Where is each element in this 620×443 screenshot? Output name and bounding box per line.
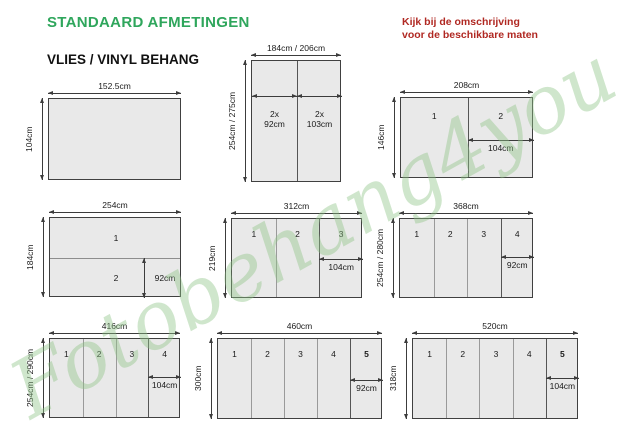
width-dimension-label: 520cm	[412, 321, 578, 331]
panel-number: 3	[479, 349, 512, 359]
figure-368x254-280: 368cm254cm / 280cm123492cm	[375, 201, 535, 300]
height-dimension-label: 184cm	[25, 217, 36, 297]
panel-number: 2	[446, 349, 479, 359]
panel-number: 3	[284, 349, 317, 359]
panel-width-arrow	[350, 380, 383, 381]
panel-number: 5	[350, 349, 383, 359]
height-dimension-label: 104cm	[24, 98, 35, 180]
width-dimension-label: 312cm	[231, 201, 362, 211]
panel-width-label: 104cm	[319, 262, 363, 272]
panel-width-arrow	[468, 140, 535, 141]
width-dimension-label: 416cm	[49, 321, 180, 331]
panel-number: 1	[50, 233, 182, 243]
availability-note-line1: Kijk bij de omschrijving	[402, 16, 538, 29]
panel-height-arrow	[144, 258, 145, 298]
height-dimension-arrow	[406, 338, 407, 419]
height-dimension-label: 254cm / 275cm	[227, 60, 238, 182]
panel-height-label: 92cm	[150, 273, 180, 283]
wallpaper-rect: 1234104cm	[49, 338, 180, 418]
width-dimension-arrow	[251, 55, 341, 56]
wallpaper-rect: 1292cm	[49, 217, 181, 297]
width-dimension-arrow	[400, 92, 533, 93]
wallpaper-rect: 12345104cm	[412, 338, 578, 419]
panel-width-label: 92cm	[501, 260, 535, 270]
height-dimension-arrow	[211, 338, 212, 419]
panel-divider	[50, 258, 180, 259]
height-dimension-arrow	[225, 218, 226, 298]
panel-number: 2	[468, 111, 535, 121]
wallpaper-sizes-infographic: STANDAARD AFMETINGEN VLIES / VINYL BEHAN…	[0, 0, 620, 443]
width-dimension-arrow	[48, 93, 181, 94]
panel-width-arrow	[319, 259, 363, 260]
panel-width-label-line: 2x	[252, 109, 297, 119]
panel-number: 2	[251, 349, 284, 359]
panel-width-label-line: 103cm	[297, 119, 342, 129]
panel-number: 4	[317, 349, 350, 359]
width-dimension-arrow	[217, 333, 382, 334]
height-dimension-label: 254cm / 280cm	[375, 218, 386, 298]
height-dimension-arrow	[43, 338, 44, 418]
height-dimension-label: 318cm	[388, 338, 399, 419]
figure-416x254-290: 416cm254cm / 290cm1234104cm	[25, 321, 182, 420]
panel-width-arrow	[297, 96, 342, 97]
page-subtitle: VLIES / VINYL BEHANG	[47, 52, 199, 67]
panel-number: 1	[232, 229, 276, 239]
availability-note: Kijk bij de omschrijving voor de beschik…	[402, 16, 538, 42]
panel-width-label: 92cm	[350, 383, 383, 393]
wallpaper-rect: 123104cm	[231, 218, 362, 298]
height-dimension-arrow	[43, 217, 44, 297]
panel-width-label: 2x103cm	[297, 109, 342, 129]
height-dimension-label: 254cm / 290cm	[25, 338, 36, 418]
wallpaper-rect: 123492cm	[399, 218, 533, 298]
panel-width-arrow	[148, 377, 181, 378]
wallpaper-rect: 12104cm	[400, 97, 533, 178]
panel-width-arrow	[252, 96, 297, 97]
panel-number: 2	[83, 349, 116, 359]
availability-note-line2: voor de beschikbare maten	[402, 29, 538, 42]
width-dimension-label: 152.5cm	[48, 81, 181, 91]
figure-184-206x254-275: 184cm / 206cm254cm / 275cm2x92cm2x103cm	[227, 43, 343, 184]
width-dimension-label: 208cm	[400, 80, 533, 90]
panel-number: 3	[116, 349, 149, 359]
panel-number: 2	[434, 229, 468, 239]
panel-number: 1	[400, 229, 434, 239]
width-dimension-label: 460cm	[217, 321, 382, 331]
panel-number: 4	[513, 349, 546, 359]
wallpaper-rect: 1234592cm	[217, 338, 382, 419]
panel-width-label-line: 2x	[297, 109, 342, 119]
panel-number: 1	[50, 349, 83, 359]
panel-width-arrow	[546, 378, 579, 379]
width-dimension-arrow	[49, 333, 180, 334]
width-dimension-arrow	[231, 213, 362, 214]
height-dimension-arrow	[42, 98, 43, 180]
panel-number: 4	[148, 349, 181, 359]
panel-width-label: 104cm	[148, 380, 181, 390]
figure-152x104: 152.5cm104cm	[24, 81, 183, 182]
figure-520x318: 520cm318cm12345104cm	[388, 321, 580, 421]
wallpaper-rect: 2x92cm2x103cm	[251, 60, 341, 182]
panel-number: 1	[218, 349, 251, 359]
width-dimension-arrow	[49, 212, 181, 213]
width-dimension-arrow	[399, 213, 533, 214]
panel-width-label: 104cm	[546, 381, 579, 391]
width-dimension-label: 254cm	[49, 200, 181, 210]
height-dimension-label: 300cm	[193, 338, 204, 419]
panel-width-label: 2x92cm	[252, 109, 297, 129]
height-dimension-arrow	[393, 218, 394, 298]
height-dimension-arrow	[245, 60, 246, 182]
width-dimension-label: 184cm / 206cm	[251, 43, 341, 53]
page-title: STANDAARD AFMETINGEN	[47, 14, 250, 31]
panel-number: 3	[319, 229, 363, 239]
panel-number: 5	[546, 349, 579, 359]
figure-254x184: 254cm184cm1292cm	[25, 200, 183, 299]
panel-number: 4	[501, 229, 535, 239]
panel-number: 1	[401, 111, 468, 121]
width-dimension-label: 368cm	[399, 201, 533, 211]
panel-number: 1	[413, 349, 446, 359]
figure-460x300: 460cm300cm1234592cm	[193, 321, 384, 421]
panel-width-label-line: 92cm	[252, 119, 297, 129]
height-dimension-arrow	[394, 97, 395, 178]
wallpaper-rect	[48, 98, 181, 180]
figure-208x146: 208cm146cm12104cm	[376, 80, 535, 180]
panel-number: 2	[276, 229, 320, 239]
width-dimension-arrow	[412, 333, 578, 334]
figure-312x219: 312cm219cm123104cm	[207, 201, 364, 300]
panel-number: 3	[467, 229, 501, 239]
panel-width-label: 104cm	[468, 143, 535, 153]
height-dimension-label: 146cm	[376, 97, 387, 178]
height-dimension-label: 219cm	[207, 218, 218, 298]
panel-width-arrow	[501, 257, 535, 258]
